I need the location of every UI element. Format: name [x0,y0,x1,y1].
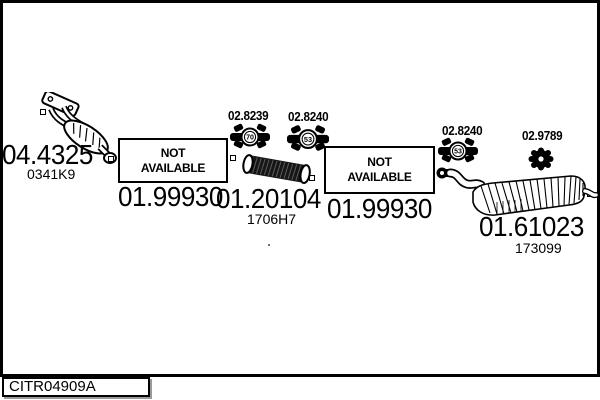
joint-marker [40,109,46,115]
part-number-downpipe[interactable]: 01.99930 [118,183,223,211]
part-number-flex-pipe[interactable]: 01.20104 [216,185,321,213]
not-available-line1: NOT [367,155,391,170]
part-number-clamp-a[interactable]: 02.8239 [228,109,268,122]
part-number-center-pipe[interactable]: 01.99930 [327,195,432,223]
not-available-line2: AVAILABLE [347,170,411,185]
not-available-box-downpipe: NOT AVAILABLE [118,138,228,183]
part-number-manifold[interactable]: 04.4325 [2,141,93,169]
not-available-line2: AVAILABLE [141,161,205,176]
joint-marker [230,155,236,161]
part-ref-manifold: 0341K9 [27,167,75,181]
diagram-code-box: CITR04909A [2,377,150,397]
clamp-icon: 53 [287,123,329,153]
clamp-a-diameter: 70 [246,135,254,142]
part-number-clamp-b[interactable]: 02.8240 [288,110,328,123]
part-ref-flex-pipe: 1706H7 [247,212,296,226]
clamp-icon: 70 [230,122,270,150]
clamp-c-diameter: 53 [454,149,462,156]
exhaust-parts-diagram: 04.4325 0341K9 NOT AVAILABLE 01.99930 02… [0,0,600,400]
diagram-code: CITR04909A [4,379,96,395]
clamp-b-diameter: 53 [304,135,312,144]
part-number-hanger[interactable]: 02.9789 [522,129,562,142]
print-speck [268,244,270,246]
part-ref-rear-silencer: 173099 [515,241,562,255]
not-available-line1: NOT [161,146,185,161]
part-number-rear-silencer[interactable]: 01.61023 [479,213,584,241]
joint-marker [108,156,114,162]
not-available-box-center-pipe: NOT AVAILABLE [324,146,435,194]
